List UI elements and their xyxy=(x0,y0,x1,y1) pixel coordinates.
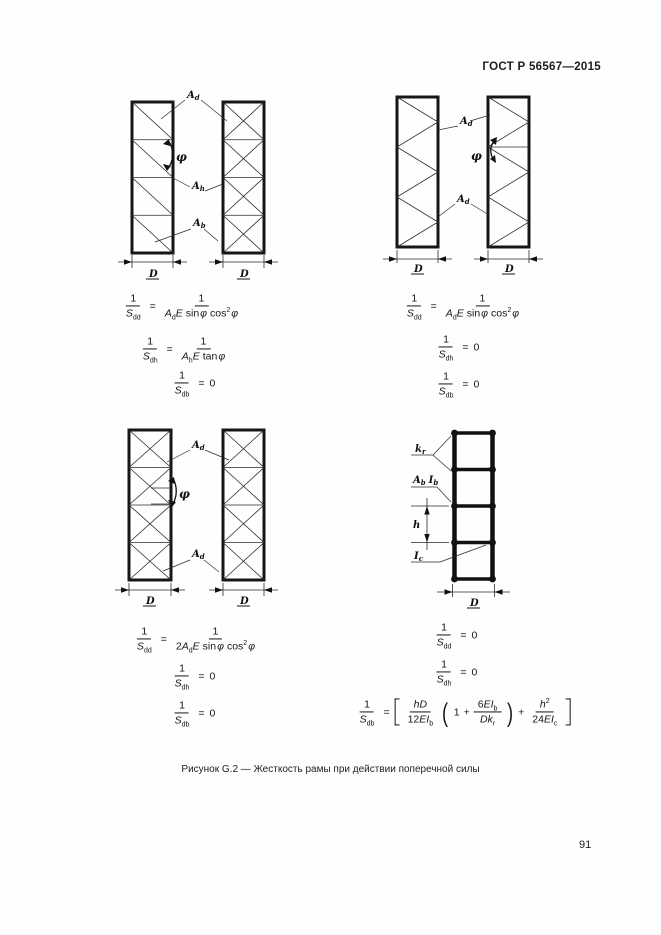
label-phi: φ xyxy=(471,149,482,163)
label-batten-properties: AbIb xyxy=(412,475,438,487)
label-chord-inertia: Ic xyxy=(413,551,424,563)
label-area-diagonal: Ad xyxy=(186,90,200,102)
left-column-zigzag xyxy=(397,97,438,247)
label-dim-D: D xyxy=(145,596,155,607)
formula-bl-sdh: 1Sdh = 0 xyxy=(171,662,216,689)
right-column-zigzag xyxy=(488,97,529,247)
label-area-horizontal: Ah xyxy=(191,181,205,193)
diagram-frame-diagonals-horizontals: Ad φ Ah Ab D D xyxy=(105,88,295,288)
document-page: ГОСТ Р 56567—2015 Ad φ Ah Ab D xyxy=(0,0,661,935)
leader-lines-batten-props xyxy=(411,487,451,502)
dimension-D-right: D xyxy=(209,583,278,607)
formula-br-sdd: 1Sdd = 0 xyxy=(433,621,478,648)
label-dim-D: D xyxy=(413,264,423,275)
formula-tl-sdb: 1Sdb = 0 xyxy=(171,369,216,396)
left-column-d-bracing xyxy=(132,102,173,253)
page-number: 91 xyxy=(579,839,591,851)
diagram-frame-x-bracing: Ad φ Ad D D xyxy=(105,418,295,618)
dimension-h: h xyxy=(411,498,449,550)
right-column-x-bracing xyxy=(223,102,264,253)
right-column-x-bracing xyxy=(223,430,264,580)
battens xyxy=(452,433,495,579)
formula-tr-sdd: 1Sdd = 1AdEsinφcos2φ xyxy=(403,292,523,319)
label-area-diagonal: Ad xyxy=(191,440,205,452)
dimension-D-left: D xyxy=(115,583,185,607)
formula-tl-sdh: 1Sdh = 1AhEtanφ xyxy=(139,335,229,362)
angle-phi-annotation: φ xyxy=(163,139,187,171)
standard-code-header: ГОСТ Р 56567—2015 xyxy=(482,61,601,73)
leader-lines-Ad-lower xyxy=(438,204,489,217)
diagram-battened-frame: kr AbIb h Ic D xyxy=(385,418,565,618)
label-dim-D: D xyxy=(469,598,479,609)
leader-lines-Ab xyxy=(155,229,218,242)
label-phi: φ xyxy=(179,487,190,501)
formula-bl-sdb: 1Sdb = 0 xyxy=(171,699,216,726)
leader-lines-Ad-upper xyxy=(167,450,229,462)
dimension-D-left: D xyxy=(383,250,452,275)
label-area-batten: Ab xyxy=(192,218,206,230)
label-dim-D: D xyxy=(239,596,249,607)
label-dim-D: D xyxy=(148,269,158,280)
label-panel-height: h xyxy=(413,520,420,531)
formula-tl-sdd: 1Sdd = 1AdEsinφcos2φ xyxy=(122,292,242,319)
formula-tr-sdh: 1Sdh = 0 xyxy=(435,333,480,360)
dimension-D: D xyxy=(437,584,510,609)
label-area-diagonal: Ad xyxy=(191,549,205,561)
formula-br-sdb: 1Sdb = hD12EIb ( 1 + 6EIbDkr ) + h224EIc xyxy=(356,698,571,725)
label-joint-stiffness: kr xyxy=(415,444,427,456)
left-column-x-bracing xyxy=(129,430,171,580)
formula-br-sdh: 1Sdh = 0 xyxy=(433,658,478,685)
formula-bl-sdd: 1Sdd = 12AdEsinφcos2φ xyxy=(133,625,259,652)
diagram-frame-zigzag-bracing: Ad φ Ad D D xyxy=(375,88,565,288)
label-area-diagonal: Ad xyxy=(456,194,470,206)
dimension-D-left: D xyxy=(118,255,187,280)
dimension-D-right: D xyxy=(474,250,543,275)
label-dim-D: D xyxy=(504,264,514,275)
figure-caption: Рисунок G.2 — Жесткость рамы при действи… xyxy=(0,764,661,775)
label-dim-D: D xyxy=(239,269,249,280)
formula-tr-sdb: 1Sdb = 0 xyxy=(435,370,480,397)
label-phi: φ xyxy=(176,150,187,164)
dimension-D-right: D xyxy=(209,255,278,280)
label-area-diagonal: Ad xyxy=(459,116,473,128)
